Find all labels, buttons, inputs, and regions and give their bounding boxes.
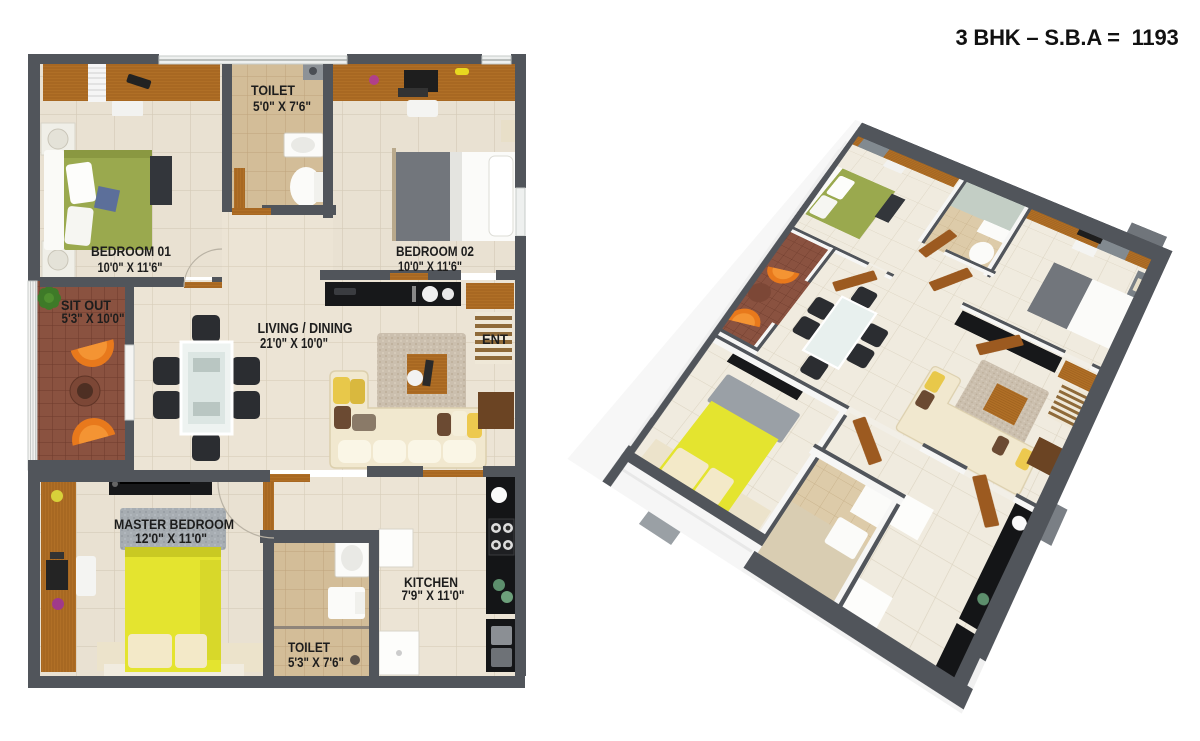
svg-text:BEDROOM 01: BEDROOM 01 (91, 243, 171, 259)
svg-text:7'9" X 11'0": 7'9" X 11'0" (402, 587, 465, 603)
svg-text:5'3" X 10'0": 5'3" X 10'0" (62, 310, 125, 326)
svg-text:ENT: ENT (482, 331, 508, 347)
svg-text:10'0" X 11'6": 10'0" X 11'6" (398, 258, 462, 274)
svg-text:BEDROOM 02: BEDROOM 02 (396, 243, 474, 259)
svg-text:12'0" X 11'0": 12'0" X 11'0" (135, 530, 207, 546)
svg-text:5'3" X 7'6": 5'3" X 7'6" (288, 654, 344, 670)
svg-text:10'0" X 11'6": 10'0" X 11'6" (98, 259, 163, 275)
svg-text:TOILET: TOILET (251, 82, 295, 98)
svg-text:21'0" X 10'0": 21'0" X 10'0" (260, 335, 328, 352)
svg-text:5'0" X 7'6": 5'0" X 7'6" (253, 98, 311, 114)
svg-text:TOILET: TOILET (288, 639, 330, 655)
